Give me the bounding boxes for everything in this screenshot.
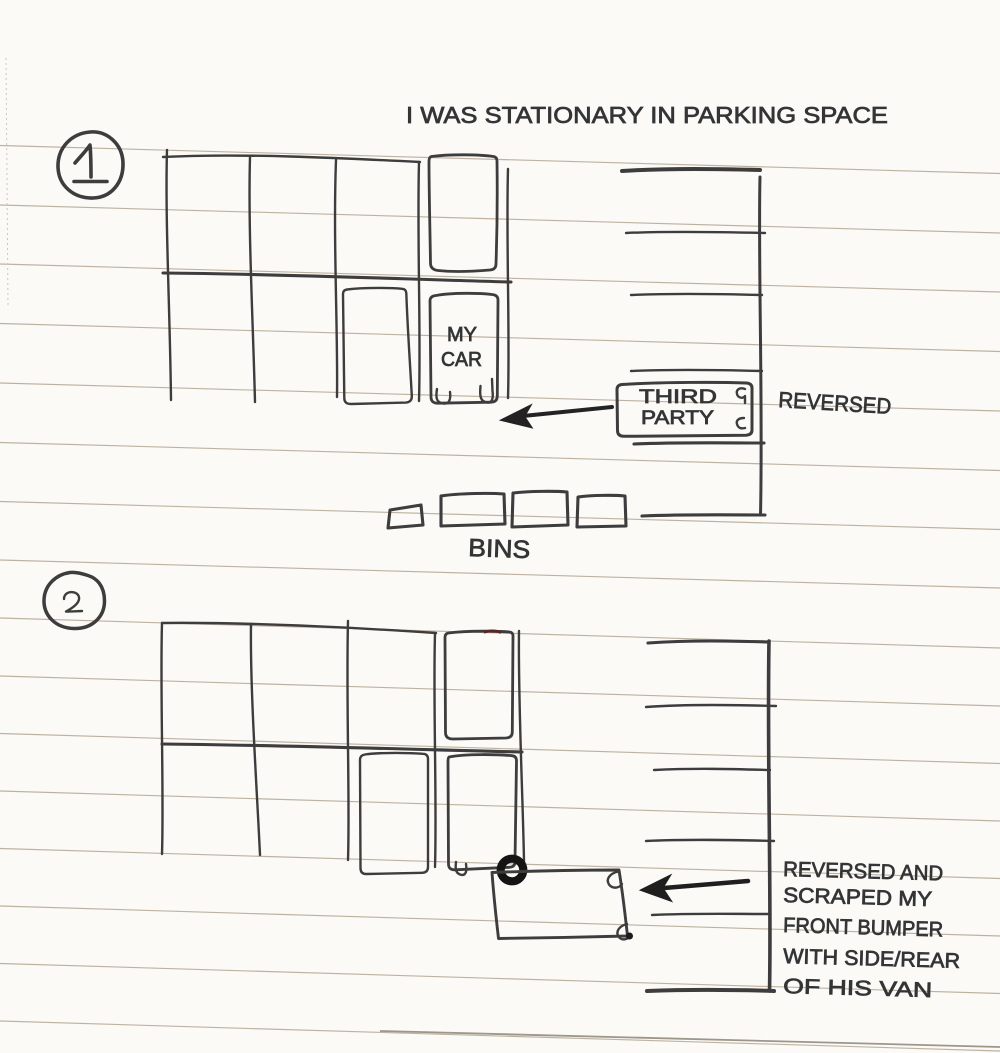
svg-text:FRONT BUMPER: FRONT BUMPER: [783, 914, 944, 941]
svg-text:MY: MY: [447, 324, 477, 346]
svg-text:OF HIS VAN: OF HIS VAN: [783, 975, 933, 1002]
svg-text:THIRD: THIRD: [639, 387, 717, 408]
svg-text:I WAS STATIONARY IN PARKING SP: I WAS STATIONARY IN PARKING SPACE: [406, 102, 888, 128]
svg-text:REVERSED AND: REVERSED AND: [783, 858, 944, 885]
svg-text:CAR: CAR: [441, 349, 482, 371]
svg-text:BINS: BINS: [468, 534, 531, 564]
svg-text:SCRAPED MY: SCRAPED MY: [783, 884, 933, 911]
svg-text:PARTY: PARTY: [641, 408, 714, 429]
